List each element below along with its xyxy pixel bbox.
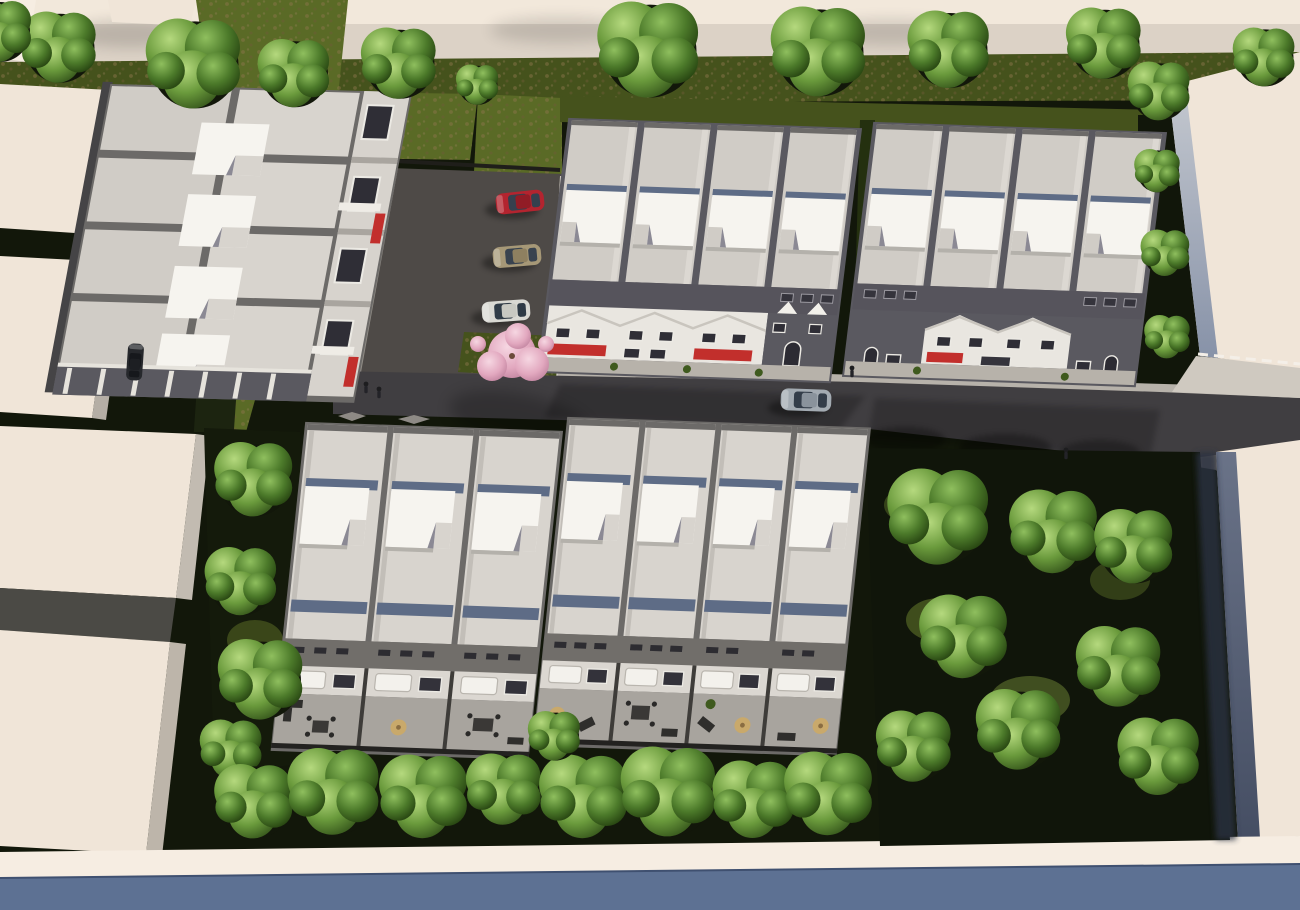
patio-door	[418, 677, 441, 692]
window	[809, 324, 822, 333]
window-slit	[630, 644, 643, 650]
patio-door	[814, 677, 835, 692]
flower-box	[926, 352, 963, 363]
mansard-vent	[884, 290, 897, 298]
cherry-foliage	[515, 347, 549, 381]
window	[361, 105, 393, 140]
window	[1040, 340, 1055, 350]
window-slit	[422, 651, 435, 657]
window-slit	[486, 653, 499, 659]
dining-table	[631, 705, 650, 720]
mansard-vent	[904, 291, 917, 299]
patio-door	[504, 680, 527, 695]
canopy	[311, 346, 354, 355]
mansard-vent	[1124, 299, 1137, 307]
patio-door	[662, 671, 683, 686]
window	[623, 348, 640, 359]
floor-shadow-line	[351, 157, 398, 164]
bench	[661, 728, 678, 737]
window	[701, 333, 716, 343]
pedestrian	[1064, 448, 1069, 460]
pedestrian	[377, 387, 382, 399]
townhouse-row-bottom-middle	[533, 417, 871, 757]
awning	[460, 677, 498, 695]
window	[335, 248, 367, 283]
awning	[374, 674, 412, 692]
patio-door	[738, 674, 759, 689]
flower-box	[693, 348, 752, 361]
roof-box-unit	[179, 194, 257, 248]
aerial-render	[0, 0, 1300, 910]
roof-box-notch	[205, 299, 237, 320]
window-slit	[782, 650, 795, 656]
roof-box-unit	[165, 266, 243, 320]
bench	[507, 737, 524, 745]
rear-facade	[278, 638, 540, 702]
patio-door	[332, 674, 355, 689]
window	[731, 334, 746, 344]
window-slit	[650, 645, 663, 651]
window	[628, 330, 643, 340]
cherry-foliage	[477, 351, 507, 381]
window-slit	[464, 653, 477, 659]
window-slit	[594, 643, 607, 649]
window	[585, 329, 600, 339]
building-top-left	[44, 70, 415, 403]
beige-car	[492, 243, 542, 268]
dark-car	[126, 343, 145, 381]
mansard-vent	[801, 294, 814, 302]
roof-box-unit	[192, 123, 270, 177]
townhouse-row-top-right	[842, 122, 1167, 387]
townhouse-row-bottom-left	[271, 422, 563, 760]
floor-shadow-line	[324, 300, 371, 307]
neighbor-block	[0, 426, 196, 598]
pedestrian	[364, 382, 369, 394]
window-slit	[706, 647, 719, 653]
window	[658, 331, 673, 341]
canopy	[338, 202, 381, 211]
window-slit	[670, 646, 683, 652]
dining-table	[312, 720, 329, 733]
mansard-vent	[781, 293, 794, 301]
roof-box-notch	[232, 155, 264, 176]
mansard-vent	[821, 295, 834, 303]
window	[555, 328, 570, 338]
pedestrian	[850, 366, 855, 378]
bench	[777, 732, 796, 741]
neighbor-block	[0, 630, 170, 854]
roof-box-notch	[219, 227, 251, 248]
cherry-foliage	[538, 336, 554, 352]
silver-car	[780, 388, 831, 412]
mansard-vent	[864, 290, 877, 298]
awning	[548, 665, 582, 683]
window	[1006, 339, 1021, 349]
dining-table	[472, 718, 493, 732]
mansard-vent	[1084, 297, 1097, 305]
awning	[776, 673, 810, 691]
window-slit	[802, 650, 815, 656]
window-slit	[574, 642, 587, 648]
cherry-foliage	[505, 323, 531, 349]
window	[649, 349, 666, 360]
window-slit	[400, 650, 413, 656]
window-slit	[378, 650, 391, 656]
flower-box	[547, 343, 606, 356]
window-slit	[726, 648, 739, 654]
window-slit	[314, 647, 327, 653]
window	[936, 336, 951, 346]
townhouse-row-top-middle	[537, 118, 862, 383]
window-slit	[508, 654, 521, 660]
window	[773, 323, 786, 332]
white-car	[481, 299, 531, 323]
window-slit	[336, 648, 349, 654]
cherry-trunk	[509, 353, 515, 359]
window-slit	[554, 642, 567, 648]
window	[968, 337, 983, 347]
awning	[700, 671, 734, 689]
mansard-vent	[1104, 298, 1117, 306]
entry-glazing	[980, 356, 1011, 367]
cherry-foliage	[470, 336, 486, 352]
awning	[624, 668, 658, 686]
patio-door	[586, 669, 607, 684]
aerial-render-canvas	[0, 0, 1300, 910]
